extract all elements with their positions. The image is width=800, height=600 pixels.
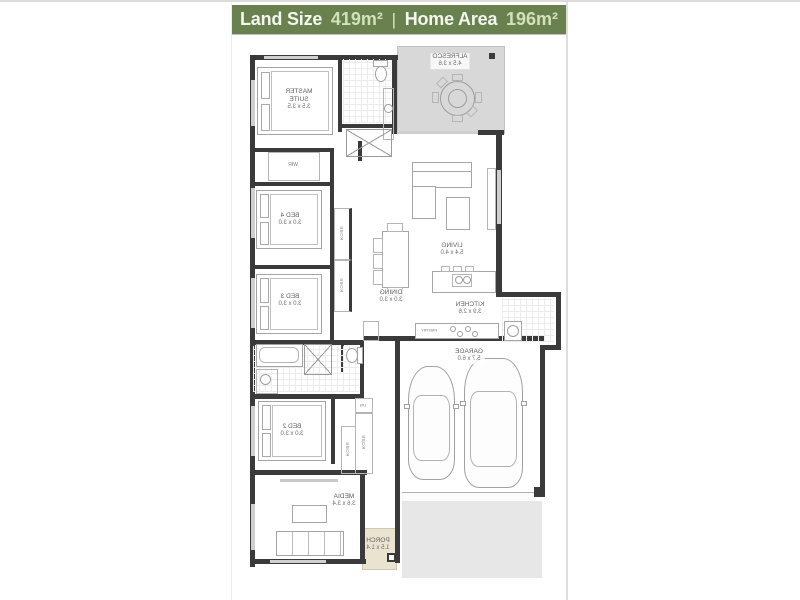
room-label-bed2: BED 2 3.0 x 3.0 xyxy=(278,423,305,439)
robe-label: ROBE xyxy=(338,276,344,295)
dining-chair xyxy=(373,270,383,285)
laundry-tub-bowl xyxy=(507,325,519,337)
photo-border-top xyxy=(0,0,800,2)
sink-bowl xyxy=(463,276,471,284)
photo-border-left xyxy=(231,2,232,600)
wc-toilet-bowl xyxy=(346,348,358,363)
sink-bowl xyxy=(455,276,463,284)
window xyxy=(251,278,255,328)
alfresco-chair xyxy=(475,92,482,103)
pantry-label: PANTRY xyxy=(419,328,439,333)
ensuite-shower xyxy=(346,129,392,157)
car xyxy=(408,366,455,480)
room-label-dining: DINING 3.0 x 3.0 xyxy=(377,289,404,305)
wall xyxy=(556,292,561,350)
wall xyxy=(331,398,335,464)
bath-tub-inner xyxy=(259,347,299,363)
room-label-master-suite: MASTER SUITE 3.5 x 3.5 xyxy=(280,88,318,112)
header-bar: Land Size 419m² | Home Area 196m² xyxy=(232,5,566,34)
room-label-media: MEDIA 3.6 x 3.4 xyxy=(330,493,357,509)
window xyxy=(264,56,318,59)
alfresco-post xyxy=(489,53,495,59)
stove-burner xyxy=(472,331,478,337)
stove-burner xyxy=(457,331,463,337)
wall xyxy=(534,487,544,497)
window xyxy=(251,504,255,550)
linen-label: LIN xyxy=(358,403,368,408)
room-label-garage: GARAGE 5.7 x 6.0 xyxy=(453,348,485,364)
home-area-label: Home Area xyxy=(405,9,498,30)
dining-chair xyxy=(387,223,403,232)
bathroom-shower xyxy=(304,344,332,375)
tv-unit xyxy=(487,168,496,230)
wall xyxy=(250,182,334,186)
coffee-table xyxy=(446,197,470,230)
robe-label: ROBE xyxy=(344,440,350,459)
alfresco-chair xyxy=(452,115,463,122)
window xyxy=(270,560,326,563)
media-tv xyxy=(280,479,338,482)
car xyxy=(464,358,523,488)
room-label-living: LIVING 5.4 x 4.0 xyxy=(438,242,465,258)
wall xyxy=(250,394,364,399)
living-sofa-chaise xyxy=(412,186,436,219)
room-label-alfresco: ALFRESCO 4.5 x 3.6 xyxy=(430,53,469,69)
window xyxy=(251,406,255,456)
ensuite-basin xyxy=(384,104,393,113)
bar-stool xyxy=(453,266,462,272)
wall xyxy=(338,55,342,132)
stove-burner xyxy=(450,326,456,332)
driveway-area xyxy=(402,501,542,578)
room-label-porch: PORCH 1.5 x 1.4 xyxy=(364,537,391,553)
header-divider: | xyxy=(392,10,396,30)
wall xyxy=(500,292,560,297)
dining-table xyxy=(382,231,409,288)
window xyxy=(251,188,255,238)
room-label-bed3: BED 3 3.0 x 3.0 xyxy=(276,293,303,309)
alfresco-sliding-door xyxy=(397,131,477,134)
alfresco-chair xyxy=(452,74,463,81)
bar-stool xyxy=(465,266,474,272)
media-sofa xyxy=(276,531,344,556)
ensuite-toilet-bowl xyxy=(375,66,387,82)
dining-chair xyxy=(373,254,383,269)
window xyxy=(497,170,501,224)
alfresco-table-center xyxy=(448,89,467,108)
floorplan-listing-image: Land Size 419m² | Home Area 196m² xyxy=(0,0,800,600)
photo-border-right xyxy=(566,2,568,600)
media-coffee-table xyxy=(292,505,327,523)
bathroom-basin xyxy=(260,374,271,385)
wall xyxy=(250,265,335,269)
robe-label: ROBE xyxy=(338,224,344,243)
wall xyxy=(540,350,545,497)
bar-stool xyxy=(441,266,450,272)
wall xyxy=(395,341,400,563)
home-area-value: 196m² xyxy=(506,9,558,30)
stove-burner xyxy=(465,326,471,332)
wir-label: WIR xyxy=(286,162,300,168)
dining-chair xyxy=(373,238,383,253)
room-label-bed4: BED 4 3.0 x 3.0 xyxy=(276,212,303,228)
fridge xyxy=(363,321,379,341)
land-size-label: Land Size xyxy=(240,9,322,30)
room-label-kitchen: KITCHEN 3.9 x 2.6 xyxy=(454,301,487,317)
window xyxy=(251,80,255,126)
alfresco-chair xyxy=(432,92,439,103)
land-size-value: 419m² xyxy=(331,9,383,30)
robe-label: ROBE xyxy=(360,433,366,452)
